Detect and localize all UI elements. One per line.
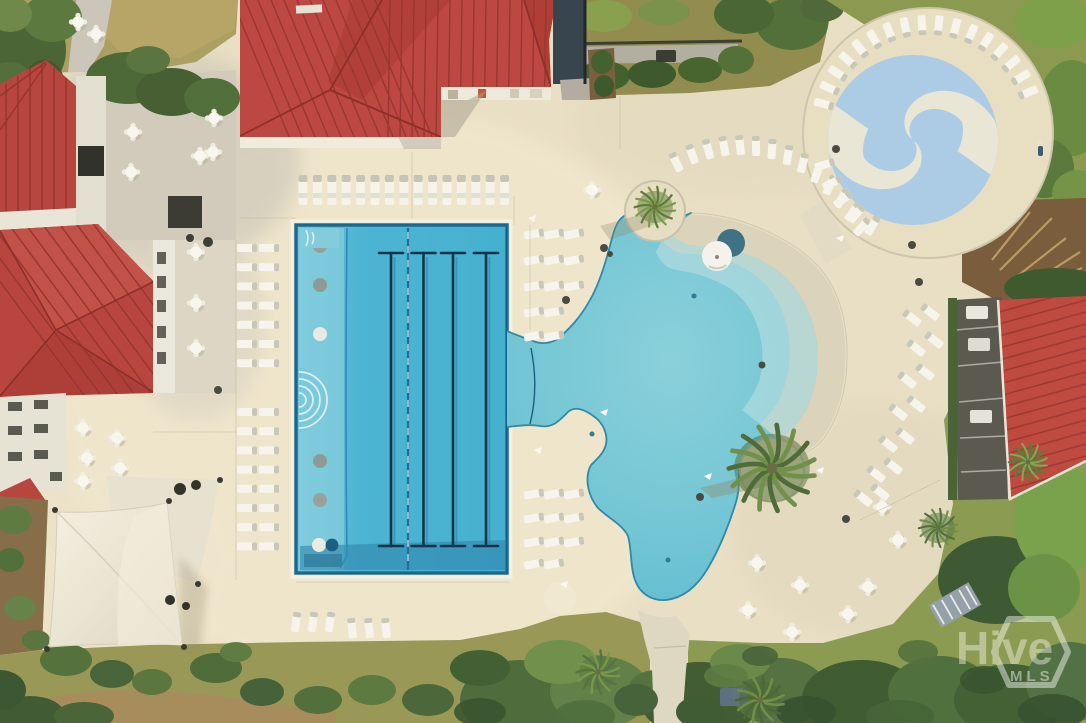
svg-text:Hive: Hive	[956, 622, 1053, 674]
svg-text:MLS: MLS	[1010, 668, 1054, 685]
